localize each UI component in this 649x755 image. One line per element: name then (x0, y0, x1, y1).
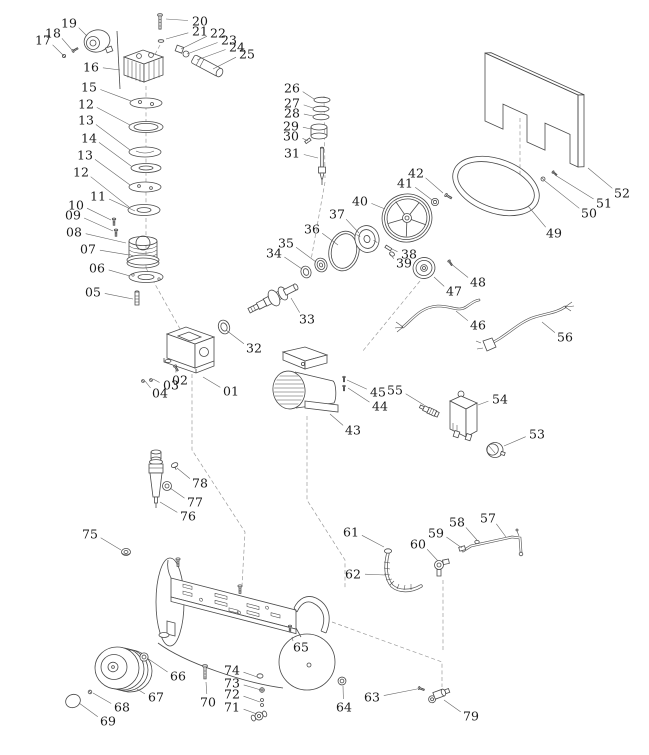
leader-line-48 (450, 263, 468, 278)
cylinder-head (124, 50, 163, 82)
leader-line-19 (79, 28, 87, 36)
part-label-46: 46 (470, 318, 486, 333)
piston-ring-set (305, 97, 330, 185)
part-label-21: 21 (192, 24, 208, 39)
part-label-48: 48 (470, 275, 486, 290)
leader-line-55 (406, 394, 424, 405)
part-label-16: 16 (83, 60, 99, 75)
part-label-26: 26 (284, 81, 300, 96)
leader-line-75 (101, 538, 121, 550)
discharge-pipe (463, 529, 523, 556)
part-label-74: 74 (224, 663, 240, 678)
part-label-52: 52 (614, 186, 630, 201)
part-label-19: 19 (61, 16, 77, 31)
regulator-filter (149, 450, 180, 508)
leader-line-56 (542, 322, 555, 333)
crankcase-screw (150, 379, 153, 382)
leader-line-45 (347, 380, 367, 389)
leader-line-58 (466, 527, 477, 540)
leader-line-51 (555, 175, 594, 199)
tank-handle (294, 596, 329, 633)
leader-line-52 (588, 168, 612, 188)
cylinder-gasket (129, 272, 163, 283)
cylinder (127, 236, 159, 268)
leader-line-34 (284, 257, 302, 269)
leader-line-13 (96, 125, 130, 151)
shaft-seal (299, 265, 313, 280)
leader-line-10 (87, 208, 111, 220)
part-label-56: 56 (557, 330, 573, 345)
part-label-07: 07 (80, 242, 96, 257)
leader-line-60 (427, 549, 438, 561)
part-label-55: 55 (387, 383, 403, 398)
leader-line-72 (244, 696, 261, 702)
part-label-01: 01 (223, 384, 239, 399)
part-label-25: 25 (239, 47, 255, 62)
leader-line-53 (504, 437, 526, 446)
wheel-tire (95, 647, 139, 689)
crankcase-screw (142, 380, 145, 383)
part-label-05: 05 (85, 285, 101, 300)
wheel-washer (140, 653, 148, 661)
leader-line-63 (384, 689, 417, 696)
part-label-09: 09 (65, 208, 81, 223)
part-label-60: 60 (410, 537, 426, 552)
mounting-nut (122, 549, 131, 556)
axle-bolt (203, 665, 208, 679)
part-label-33: 33 (299, 312, 315, 327)
pressure-gauge (487, 443, 506, 458)
part-label-61: 61 (343, 525, 359, 540)
leader-line-43 (330, 414, 343, 425)
wheel-cap (63, 692, 82, 710)
part-label-71: 71 (224, 700, 240, 715)
leader-line-61 (362, 535, 384, 547)
part-label-11: 11 (90, 189, 106, 204)
leader-line-68 (93, 693, 111, 704)
leader-line-16 (103, 68, 120, 70)
motor-bolt (343, 385, 346, 390)
crankshaft (245, 278, 301, 318)
valve-plate-stack (112, 98, 163, 236)
leader-line-77 (170, 488, 185, 498)
motor-bolt (343, 376, 346, 381)
leader-line-76 (160, 502, 177, 512)
leader-line-27 (304, 105, 313, 108)
part-label-50: 50 (581, 206, 597, 221)
part-label-77: 77 (187, 495, 203, 510)
part-label-12: 12 (73, 165, 89, 180)
leader-line-62 (365, 574, 385, 575)
leader-line-14 (99, 142, 131, 166)
leader-line-50 (545, 181, 579, 208)
part-label-65: 65 (293, 640, 309, 655)
power-plug (483, 338, 496, 351)
leader-line-09 (84, 218, 113, 231)
flex-hose (384, 549, 421, 591)
leader-line-17 (53, 45, 63, 55)
part-label-15: 15 (81, 80, 97, 95)
part-label-43: 43 (345, 423, 361, 438)
flywheel-washer (431, 198, 438, 205)
leader-line-40 (371, 203, 385, 209)
flywheel-bolt (444, 193, 452, 200)
part-label-68: 68 (114, 700, 130, 715)
leader-line-42 (426, 178, 443, 193)
filter-bolt (72, 47, 79, 53)
leader-line-12 (97, 107, 130, 125)
leader-line-54 (478, 401, 488, 405)
exploded-parts-diagram: 1918172021222324251615121314131211100908… (0, 0, 649, 755)
part-label-51: 51 (596, 196, 612, 211)
shaft-key (385, 245, 395, 257)
leader-line-73 (244, 685, 261, 690)
leader-line-46 (456, 311, 468, 321)
part-label-53: 53 (529, 427, 545, 442)
leader-line-05 (105, 293, 133, 299)
leader-line-78 (177, 468, 190, 479)
part-label-42: 42 (408, 166, 424, 181)
electric-motor (271, 347, 338, 412)
leader-line-29 (303, 127, 311, 129)
part-label-30: 30 (283, 129, 299, 144)
leader-line-21 (166, 33, 188, 39)
part-label-44: 44 (372, 399, 388, 414)
leader-line-44 (348, 388, 370, 402)
pressure-switch (450, 391, 477, 441)
platform-bolt (238, 585, 242, 594)
leader-line-32 (226, 330, 244, 344)
leader-line-25 (213, 57, 236, 69)
leader-line-59 (446, 537, 462, 548)
guard-bolt (552, 171, 558, 176)
leader-line-23 (187, 43, 218, 55)
leader-line-70 (206, 682, 207, 694)
leader-line-67 (137, 689, 145, 694)
leader-line-38 (392, 249, 398, 252)
washer (158, 40, 164, 43)
leader-line-03 (153, 379, 160, 383)
leader-line-33 (291, 298, 300, 313)
part-label-17: 17 (35, 33, 51, 48)
part-label-49: 49 (546, 226, 562, 241)
part-label-70: 70 (200, 695, 216, 710)
leader-line-20 (166, 19, 188, 21)
part-label-31: 31 (284, 146, 300, 161)
leader-line-71 (244, 709, 257, 714)
part-label-08: 08 (66, 225, 82, 240)
leader-line-24 (197, 50, 226, 61)
part-label-32: 32 (246, 341, 262, 356)
leader-line-01 (203, 377, 220, 387)
leader-line-04 (145, 381, 151, 388)
drain-cock (250, 710, 268, 723)
part-labels: 1918172021222324251615121314131211100908… (35, 14, 630, 729)
part-label-76: 76 (180, 509, 196, 524)
leader-line-47 (434, 277, 444, 286)
intake-muffler (191, 55, 224, 78)
nut (183, 51, 189, 57)
leader-line-18 (62, 38, 72, 50)
part-label-04: 04 (152, 386, 168, 401)
leader-line-15 (100, 90, 131, 102)
part-label-64: 64 (336, 700, 352, 715)
leader-line-37 (346, 219, 359, 233)
part-label-39: 39 (396, 256, 412, 271)
wheel-nut (88, 690, 92, 694)
oil-seal (216, 319, 231, 336)
part-label-59: 59 (428, 526, 444, 541)
part-label-14: 14 (81, 131, 97, 146)
part-label-13: 13 (78, 113, 94, 128)
part-label-67: 67 (148, 690, 164, 705)
part-label-58: 58 (449, 515, 465, 530)
leader-line-11 (109, 199, 135, 211)
motor-power-cord (395, 300, 479, 332)
leader-line-26 (303, 92, 314, 99)
v-belt (444, 145, 547, 227)
leader-line-79 (444, 700, 461, 712)
part-label-63: 63 (364, 690, 380, 705)
part-label-73: 73 (224, 676, 240, 691)
drain-parts (250, 674, 268, 723)
regulator-outlet (163, 482, 172, 491)
part-label-13: 13 (77, 148, 93, 163)
diagram-page: 1918172021222324251615121314131211100908… (0, 0, 649, 755)
part-label-57: 57 (480, 511, 496, 526)
part-label-35: 35 (278, 236, 294, 251)
part-label-37: 37 (329, 207, 345, 222)
part-label-75: 75 (82, 527, 98, 542)
leader-line-49 (528, 206, 546, 227)
head-stud (114, 229, 118, 236)
part-label-66: 66 (170, 669, 186, 684)
leader-line-69 (79, 703, 98, 717)
stud (135, 291, 139, 305)
part-label-47: 47 (446, 284, 462, 299)
safety-valve (427, 687, 451, 704)
head-stud (112, 218, 116, 225)
leader-line-57 (496, 524, 506, 537)
part-label-79: 79 (463, 709, 479, 724)
leader-line-28 (304, 114, 313, 116)
part-label-78: 78 (192, 476, 208, 491)
part-label-69: 69 (100, 714, 116, 729)
ball-bearing (313, 256, 329, 273)
part-label-45: 45 (370, 385, 386, 400)
part-label-54: 54 (492, 392, 508, 407)
belt-guard (485, 50, 584, 181)
elbow-fitting (175, 45, 184, 53)
part-label-40: 40 (352, 194, 368, 209)
leader-line-31 (304, 155, 318, 159)
part-label-62: 62 (345, 567, 361, 582)
part-label-36: 36 (304, 222, 320, 237)
part-label-06: 06 (89, 261, 105, 276)
cap-fitting (171, 462, 180, 471)
guard-screw (541, 177, 545, 181)
check-valve-fittings (338, 677, 451, 704)
cable-gland (419, 404, 440, 418)
tank-platform (171, 558, 296, 634)
leader-line-07 (100, 250, 129, 255)
part-label-12: 12 (78, 97, 94, 112)
leader-line-13 (95, 159, 130, 185)
leader-line-06 (109, 270, 130, 276)
